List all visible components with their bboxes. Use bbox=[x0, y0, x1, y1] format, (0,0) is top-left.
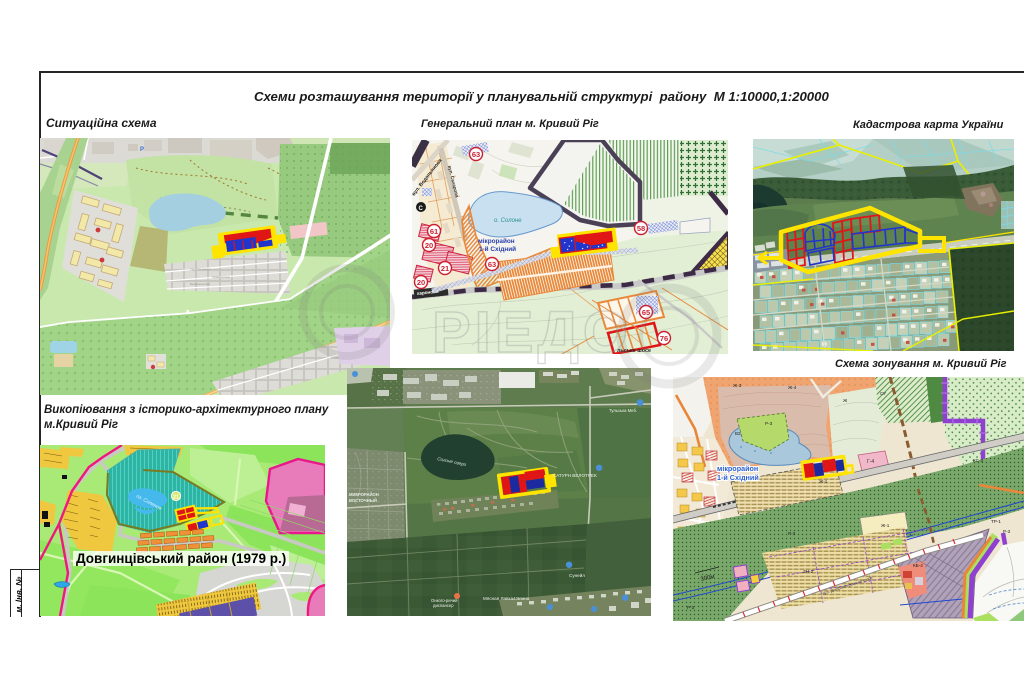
svg-text:Мясная Лавка4Элина: Мясная Лавка4Элина bbox=[483, 596, 530, 601]
svg-text:Садиbtва вулиця: Садиbtва вулиця bbox=[190, 267, 211, 271]
svg-text:20: 20 bbox=[425, 241, 433, 250]
svg-text:ТР-1: ТР-1 bbox=[991, 519, 1001, 524]
svg-text:ЗН-2: ЗН-2 bbox=[803, 569, 814, 574]
svg-text:мікрорайон: мікрорайон bbox=[717, 464, 758, 473]
svg-text:КС-3: КС-3 bbox=[973, 458, 983, 463]
svg-text:21: 21 bbox=[173, 495, 179, 501]
svg-text:Ж-4: Ж-4 bbox=[788, 385, 797, 390]
svg-text:МИКРОРАЙОН: МИКРОРАЙОН bbox=[349, 492, 379, 497]
svg-text:65: 65 bbox=[642, 308, 650, 317]
svg-text:Ж-3: Ж-3 bbox=[733, 383, 742, 388]
svg-text:СУ: СУ bbox=[880, 391, 886, 396]
svg-text:Ж-1: Ж-1 bbox=[819, 479, 828, 484]
svg-text:ВОСТОЧНЫЙ: ВОСТОЧНЫЙ bbox=[349, 498, 377, 503]
svg-text:ВЗ: ВЗ bbox=[735, 431, 741, 436]
svg-text:Ж-1: Ж-1 bbox=[881, 523, 890, 528]
svg-text:диспансер: диспансер bbox=[433, 603, 454, 608]
svg-text:1-й Східний: 1-й Східний bbox=[717, 473, 759, 482]
svg-text:Лінійна вулиця: Лінійна вулиця bbox=[212, 275, 230, 279]
svg-text:Вишнева вулиця: Вишнева вулиця bbox=[190, 282, 211, 286]
svg-text:76: 76 bbox=[660, 334, 668, 343]
svg-text:Г-4: Г-4 bbox=[867, 459, 874, 465]
svg-text:мікрорайон: мікрорайон bbox=[478, 237, 515, 245]
svg-text:20: 20 bbox=[417, 278, 425, 287]
svg-text:21: 21 bbox=[441, 264, 449, 273]
svg-text:58: 58 bbox=[637, 224, 645, 233]
svg-text:63: 63 bbox=[488, 260, 496, 269]
svg-text:Р-3: Р-3 bbox=[687, 605, 695, 610]
svg-text:Тульська Меб.: Тульська Меб. bbox=[609, 408, 637, 413]
svg-text:C: C bbox=[419, 206, 424, 212]
svg-text:Сунейл: Сунейл bbox=[569, 572, 585, 578]
svg-text:63: 63 bbox=[472, 150, 480, 159]
svg-text:САТУРН ВЕЛОТРЕК: САТУРН ВЕЛОТРЕК bbox=[553, 473, 597, 478]
svg-text:Р-3: Р-3 bbox=[1003, 529, 1011, 534]
svg-text:1-й Східний: 1-й Східний bbox=[479, 245, 516, 253]
svg-text:Р-3: Р-3 bbox=[788, 531, 796, 536]
svg-text:P: P bbox=[140, 147, 144, 153]
svg-text:льське шосе: льське шосе bbox=[617, 348, 651, 354]
svg-text:о. Солоне: о. Солоне bbox=[494, 218, 522, 224]
svg-text:КБ-4: КБ-4 bbox=[913, 563, 923, 568]
svg-text:Р-3: Р-3 bbox=[765, 421, 773, 426]
svg-text:61: 61 bbox=[430, 227, 438, 236]
